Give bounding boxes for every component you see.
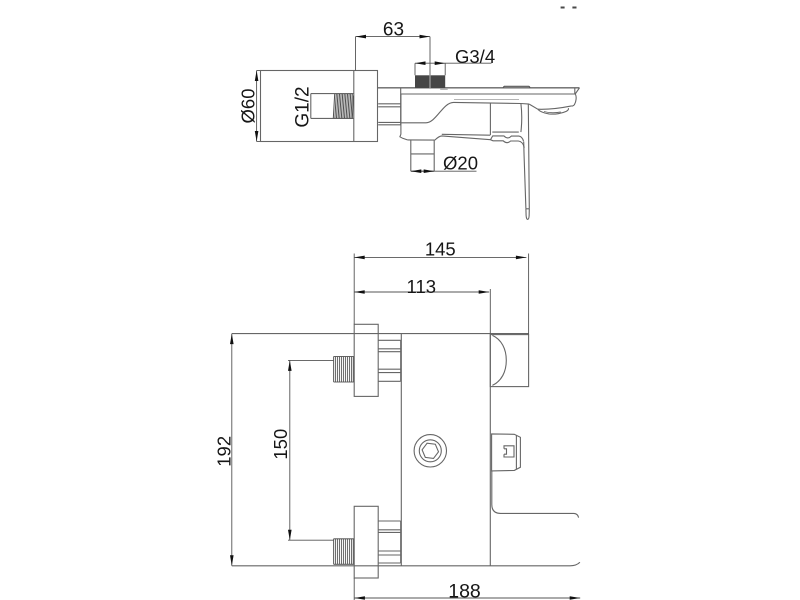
svg-text:Ø20: Ø20 xyxy=(443,153,478,174)
svg-text:63: 63 xyxy=(383,20,404,41)
svg-text:145: 145 xyxy=(425,238,456,259)
svg-text:113: 113 xyxy=(407,276,437,297)
svg-text:G3/4: G3/4 xyxy=(455,46,495,67)
svg-text:150: 150 xyxy=(270,429,291,460)
svg-text:192: 192 xyxy=(214,436,235,467)
svg-text:G1/2: G1/2 xyxy=(293,86,314,127)
svg-text:188: 188 xyxy=(448,581,481,600)
svg-text:Ø60: Ø60 xyxy=(238,89,259,124)
